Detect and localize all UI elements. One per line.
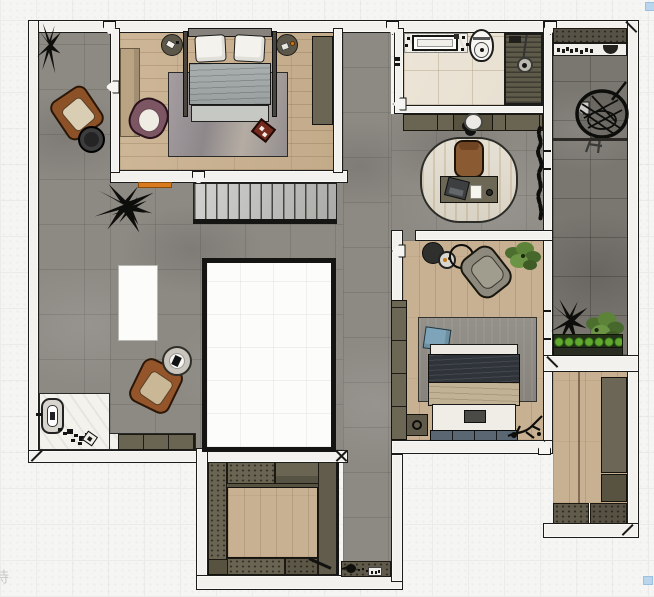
shoe-cabinet[interactable] — [118, 434, 195, 450]
floor-plan-canvas[interactable]: 持 — [0, 0, 654, 597]
laundry-sink — [603, 45, 618, 54]
laptop-keys — [449, 187, 464, 196]
plum-chair-cushion — [138, 108, 160, 132]
wall-storage-west — [196, 448, 208, 590]
wall-vine-plant[interactable] — [534, 126, 546, 222]
lounge-cushion — [468, 252, 507, 292]
side-table-round[interactable] — [162, 346, 192, 376]
wall-left — [28, 20, 39, 463]
entry-shoes[interactable] — [58, 428, 62, 431]
toilet-tank-line — [473, 37, 490, 40]
tree-plant-black[interactable] — [92, 183, 156, 237]
laundry-shelf[interactable] — [553, 43, 627, 56]
balcony-divider — [553, 138, 627, 141]
closet-bottom-cabinet[interactable] — [590, 503, 627, 524]
wall-handle-mark — [395, 57, 400, 61]
storage-cabinet[interactable] — [318, 462, 338, 575]
stairs-edge — [193, 219, 337, 224]
side-table-round[interactable] — [78, 126, 105, 153]
shower-shelf — [509, 36, 521, 43]
chair-headrest — [459, 142, 479, 150]
shelf-label-box — [368, 567, 382, 576]
duvet — [189, 63, 271, 105]
toilet[interactable] — [469, 29, 494, 62]
toilet-drain — [480, 48, 484, 52]
round-washbasin[interactable] — [464, 113, 483, 131]
bedroom2-wardrobe[interactable] — [391, 300, 407, 440]
corridor-floor — [343, 33, 391, 563]
pillow — [194, 34, 226, 63]
balcony-top-cabinet[interactable] — [553, 28, 627, 43]
shelf-dots — [358, 569, 360, 571]
bed2-foot-item — [464, 410, 486, 423]
coffee-cup[interactable] — [486, 189, 493, 196]
hanging-egg-chair[interactable] — [572, 78, 632, 154]
shower-stem — [522, 35, 527, 59]
laundry-items — [557, 48, 560, 52]
storage-room-floor — [227, 487, 318, 558]
wall-bottom-south — [196, 575, 403, 590]
decor-branch[interactable] — [506, 408, 546, 442]
tray-dot — [262, 132, 268, 138]
closet-floor-gap — [578, 372, 580, 503]
wall-bedroom2-south — [391, 440, 553, 454]
shower-drain — [522, 63, 527, 68]
shelf-label-marks — [371, 571, 373, 574]
planter-box-base — [553, 347, 623, 356]
wall-corridor-east — [391, 454, 403, 582]
bed2-duvet-navy — [428, 354, 520, 384]
closet-bottom-cabinet[interactable] — [553, 503, 589, 524]
bedside-rug-right[interactable] — [276, 34, 298, 56]
bed2-drawers — [430, 430, 518, 441]
wall-bedroom2-west — [391, 230, 403, 302]
bedside-dot-orange — [290, 41, 295, 46]
storage-cabinet[interactable] — [227, 558, 285, 575]
wall-bedroom1-west — [110, 28, 120, 173]
selection-marker[interactable] — [643, 576, 653, 585]
shower-floor[interactable] — [504, 33, 543, 105]
wall-storage-corridor-line — [336, 462, 339, 575]
selection-marker[interactable] — [645, 2, 654, 11]
bed2-throw-tan — [428, 382, 520, 406]
storage-cabinet[interactable] — [208, 462, 227, 560]
watermark-text: 持 — [0, 566, 9, 587]
armchair-cushion — [137, 369, 174, 407]
potted-plant-green[interactable] — [503, 240, 543, 276]
bed-rail — [183, 31, 188, 117]
double-bed-1[interactable] — [188, 28, 272, 122]
tray-dot-orange — [443, 258, 447, 262]
stairwell-void — [202, 258, 336, 452]
storage-cabinet[interactable] — [227, 462, 275, 484]
bedside-rug-left[interactable] — [161, 34, 183, 56]
shoe-box-dot — [87, 436, 93, 442]
closet-shelf-block[interactable] — [601, 474, 627, 502]
desk-chair[interactable] — [454, 140, 484, 178]
closet-shelf-column[interactable] — [601, 377, 627, 473]
wall-bedroom1-east — [333, 28, 343, 173]
kitchen-island[interactable] — [118, 265, 158, 341]
planter-box-plants[interactable] — [553, 334, 623, 348]
wall-balcony-south — [543, 355, 639, 372]
faucet-dots — [407, 37, 410, 40]
stairs[interactable] — [193, 183, 337, 221]
potted-plant-black[interactable] — [36, 22, 62, 78]
notepad[interactable] — [470, 185, 482, 199]
lock-button — [50, 412, 55, 420]
bed-rail — [272, 31, 277, 117]
bedside-table-2[interactable] — [406, 414, 428, 436]
wall-handle-mark — [395, 63, 400, 66]
vanity-sink[interactable] — [412, 35, 458, 51]
pillow — [233, 34, 265, 63]
sink-basin — [417, 39, 453, 47]
bedside-ring — [412, 420, 422, 430]
bedroom1-wardrobe[interactable] — [312, 36, 333, 125]
bedside-dot — [176, 41, 179, 44]
bed-foot-throw — [191, 105, 269, 122]
bedside-item — [165, 39, 176, 50]
bedside-item — [280, 42, 290, 51]
door-lock-stem — [36, 413, 42, 416]
